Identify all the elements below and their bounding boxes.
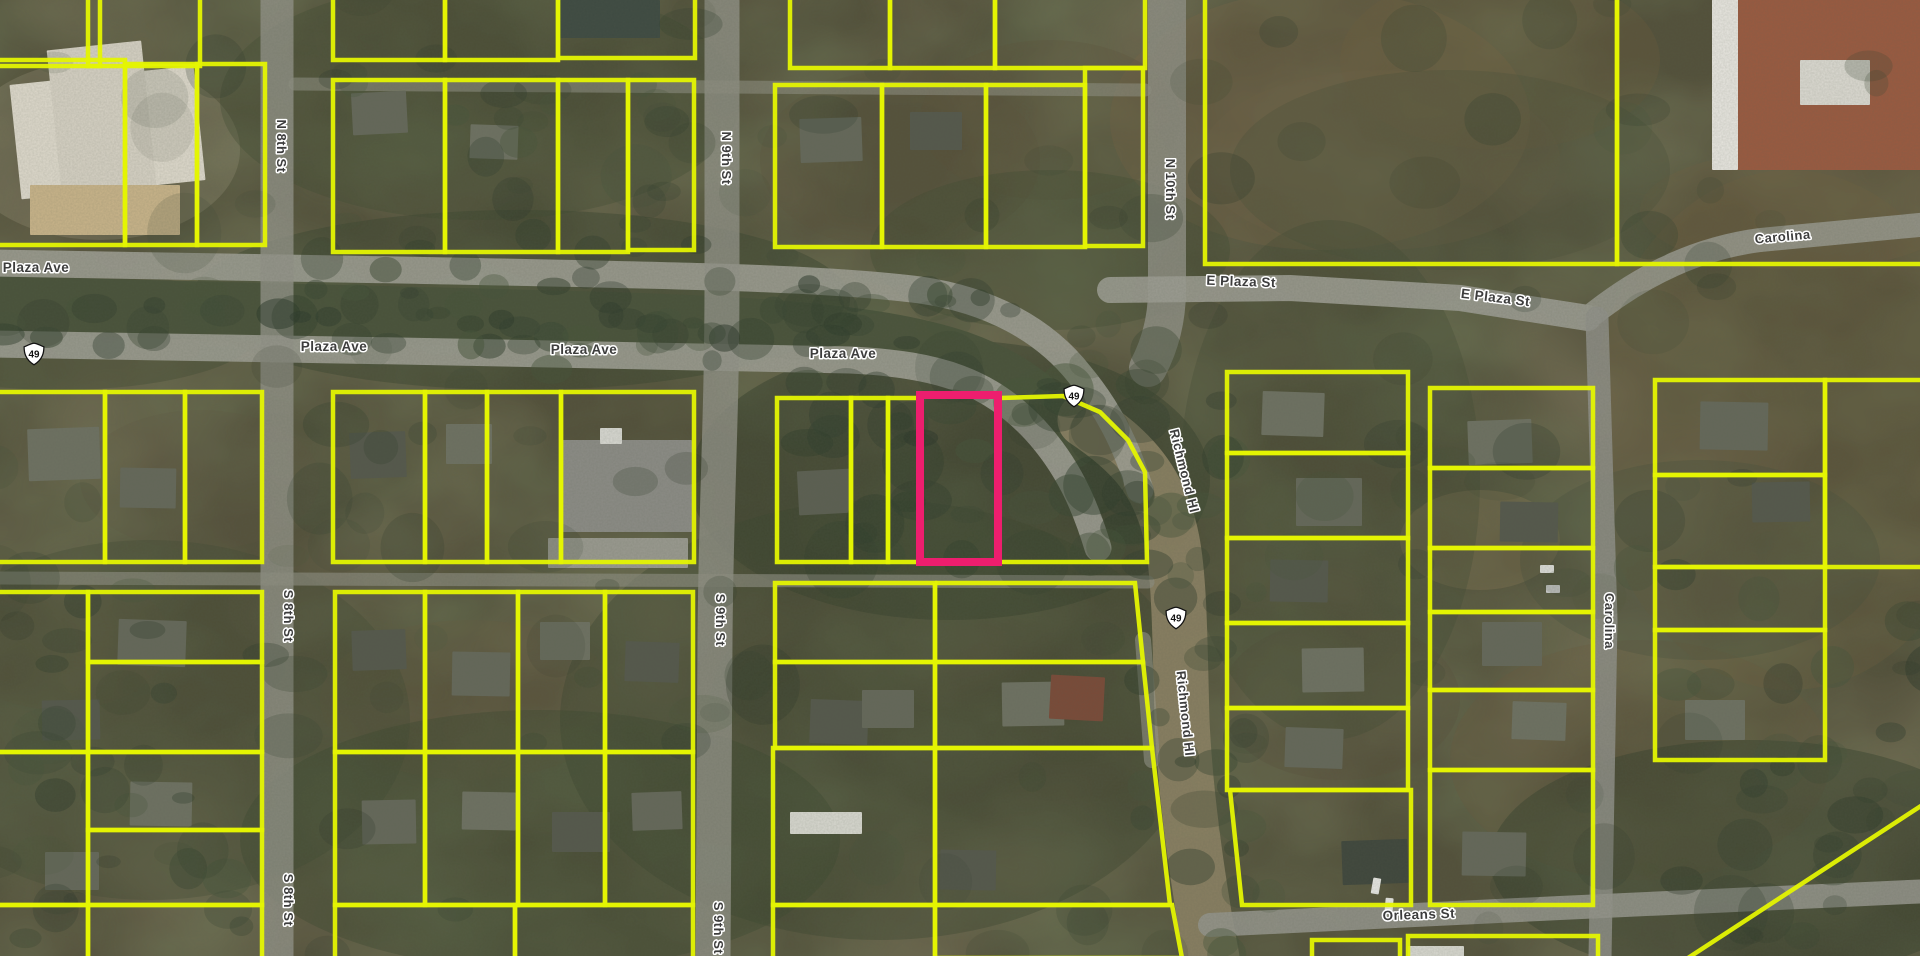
street-label: S 9th St (711, 902, 726, 955)
street-label: S 9th St (713, 594, 728, 647)
street-label: S 8th St (281, 874, 296, 927)
map-viewport[interactable]: Plaza AvePlaza AvePlaza AvePlaza AveE Pl… (0, 0, 1920, 956)
street-label: E Plaza St (1206, 273, 1276, 290)
shield-number: 49 (1068, 391, 1080, 402)
street-label: Plaza Ave (551, 342, 618, 357)
street-label: Plaza Ave (301, 339, 368, 354)
shield-number: 49 (1170, 613, 1182, 624)
street-label: N 9th St (719, 131, 734, 184)
shield-number: 49 (28, 349, 40, 360)
aerial-map-canvas: Plaza AvePlaza AvePlaza AvePlaza AveE Pl… (0, 0, 1920, 956)
street-label: N 8th St (274, 119, 289, 172)
street-label: Plaza Ave (810, 346, 877, 361)
street-label: N 10th St (1163, 159, 1178, 220)
street-label: Orleans St (1382, 906, 1455, 924)
street-label: Carolina (1602, 593, 1617, 649)
street-label: Plaza Ave (3, 260, 70, 275)
street-label: S 8th St (281, 590, 296, 643)
